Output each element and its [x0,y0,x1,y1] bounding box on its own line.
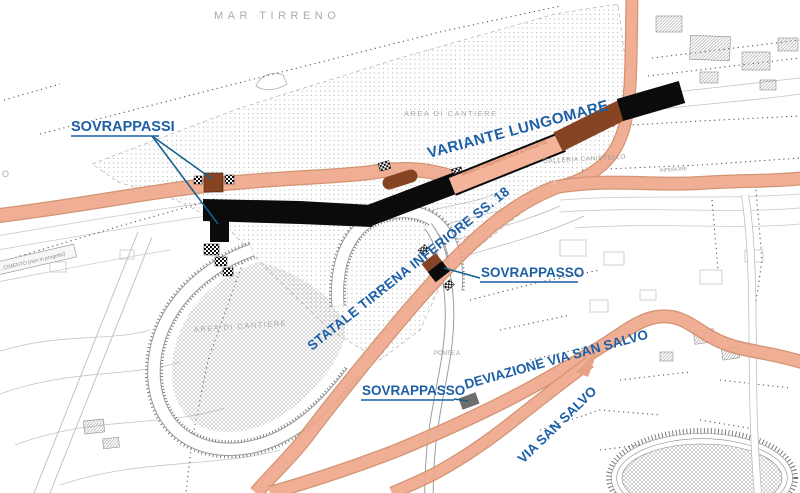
site-plan-map: VARIANTE LUNGOMARE SS.18 IN PROGETTO SOV… [0,0,800,493]
label-ponte: PONTE A [434,351,460,357]
label-sovrappasso-south: SOVRAPPASSO [362,383,465,398]
label-inferiore: INFERIORE [660,166,688,174]
overpass-marker-west-2 [210,221,229,242]
label-sovrappassi: SOVRAPPASSI [71,119,175,135]
label-sovrappasso-east: SOVRAPPASSO [481,265,584,280]
site-plan-map-image: VARIANTE LUNGOMARE SS.18 IN PROGETTO SOV… [0,0,800,493]
variant-brown-bridge [389,176,411,183]
label-mar-tirreno: MAR TIRRENO [214,10,340,22]
label-non-in-progetto: ...CIMENTO (non in progetto) [0,244,77,275]
label-sea-letter: O [2,169,9,179]
label-area-cantiere-beach: AREA DI CANTIERE [404,109,498,118]
embankment-oval [610,432,794,493]
